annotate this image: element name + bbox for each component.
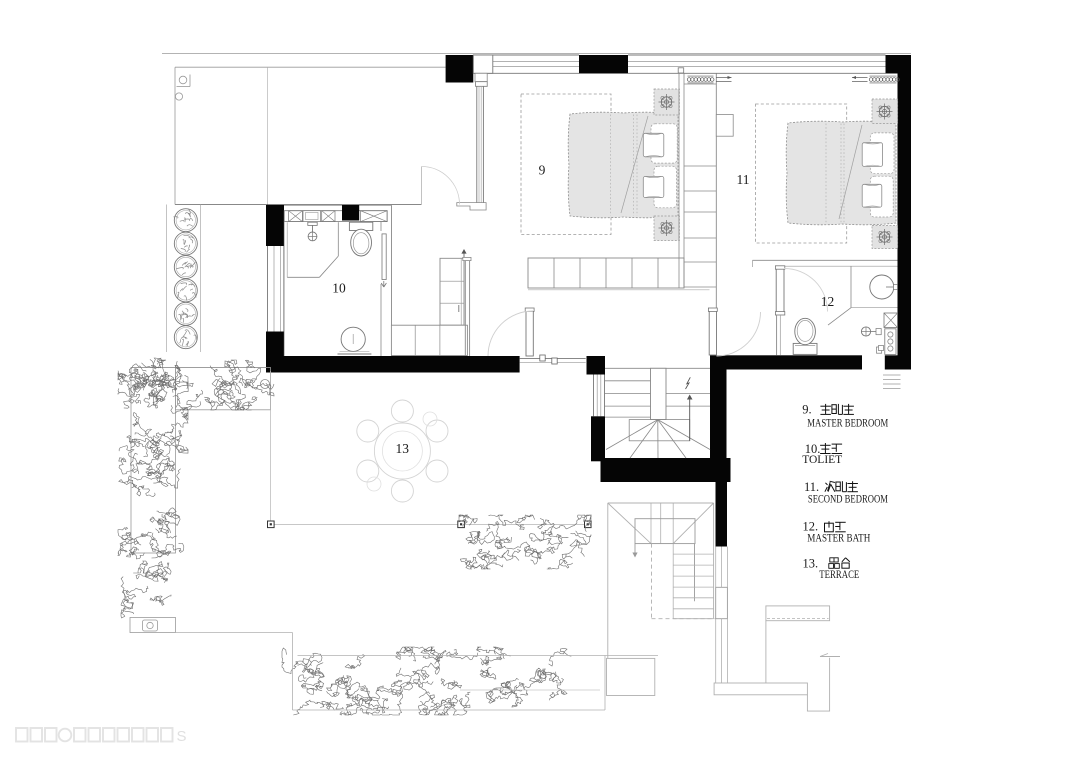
svg-text:12.: 12. — [803, 520, 819, 534]
svg-text:S: S — [177, 728, 187, 745]
svg-text:9.: 9. — [802, 403, 811, 417]
svg-text:SECOND BEDROOM: SECOND BEDROOM — [808, 494, 888, 506]
svg-text:13.: 13. — [803, 556, 819, 570]
svg-text:13: 13 — [396, 441, 410, 456]
svg-text:9: 9 — [539, 163, 546, 178]
svg-text:11: 11 — [737, 172, 750, 187]
svg-text:MASTER BATH: MASTER BATH — [807, 533, 870, 545]
svg-text:MASTER BEDROOM: MASTER BEDROOM — [807, 418, 888, 430]
svg-text:TOLIET: TOLIET — [802, 454, 842, 466]
svg-text:10: 10 — [332, 281, 346, 296]
svg-text:12: 12 — [821, 294, 835, 309]
svg-text:TERRACE: TERRACE — [819, 569, 859, 581]
svg-text:11.: 11. — [804, 480, 819, 494]
